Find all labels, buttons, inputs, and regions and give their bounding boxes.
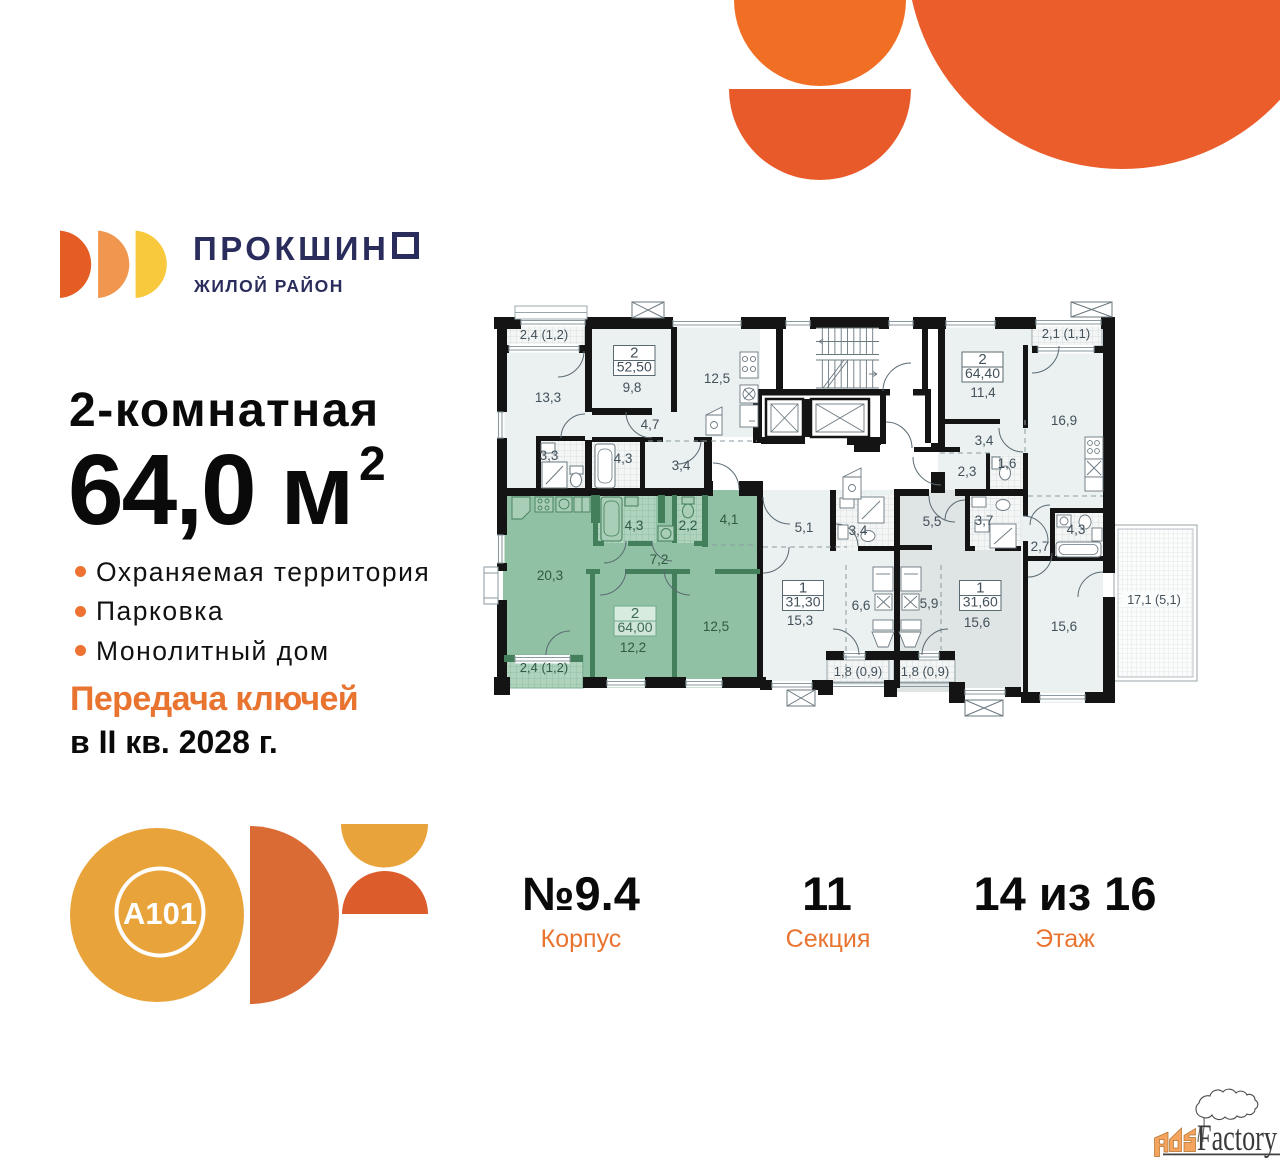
svg-text:31,30: 31,30 xyxy=(785,594,820,610)
svg-text:12,2: 12,2 xyxy=(620,640,646,655)
svg-text:4,3: 4,3 xyxy=(1067,522,1086,537)
svg-text:12,5: 12,5 xyxy=(703,619,729,634)
svg-text:3,4: 3,4 xyxy=(975,433,994,448)
svg-text:4,3: 4,3 xyxy=(625,518,644,533)
svg-text:4,1: 4,1 xyxy=(720,512,739,527)
svg-text:2,2: 2,2 xyxy=(679,518,698,533)
svg-text:2,4 (1,2): 2,4 (1,2) xyxy=(520,327,568,342)
svg-text:6,6: 6,6 xyxy=(852,598,871,613)
svg-text:1,8 (0,9): 1,8 (0,9) xyxy=(901,664,949,679)
svg-text:64,40: 64,40 xyxy=(965,365,1000,381)
svg-text:3,7: 3,7 xyxy=(975,513,994,528)
svg-text:2,1 (1,1): 2,1 (1,1) xyxy=(1042,326,1090,341)
svg-text:1,6: 1,6 xyxy=(998,456,1017,471)
svg-text:3,4: 3,4 xyxy=(849,523,868,538)
svg-text:64,00: 64,00 xyxy=(617,619,652,635)
svg-text:2,7: 2,7 xyxy=(1031,539,1050,554)
svg-text:31,60: 31,60 xyxy=(963,594,998,610)
svg-text:7,2: 7,2 xyxy=(650,552,669,567)
svg-text:9,8: 9,8 xyxy=(623,380,642,395)
svg-text:17,1 (5,1): 17,1 (5,1) xyxy=(1127,593,1181,607)
svg-text:5,1: 5,1 xyxy=(795,520,814,535)
svg-text:11,4: 11,4 xyxy=(970,385,996,400)
svg-text:13,3: 13,3 xyxy=(535,390,561,405)
svg-text:12,5: 12,5 xyxy=(704,371,730,386)
svg-text:3,3: 3,3 xyxy=(540,448,559,463)
svg-text:52,50: 52,50 xyxy=(617,359,652,375)
svg-text:20,3: 20,3 xyxy=(537,568,563,583)
svg-text:Factory: Factory xyxy=(1197,1118,1277,1159)
svg-text:1,8 (0,9): 1,8 (0,9) xyxy=(834,664,882,679)
svg-text:4,7: 4,7 xyxy=(641,417,660,432)
svg-text:5,9: 5,9 xyxy=(920,596,939,611)
svg-text:3,4: 3,4 xyxy=(672,458,691,473)
svg-text:16,9: 16,9 xyxy=(1051,413,1077,428)
svg-text:2,3: 2,3 xyxy=(958,464,977,479)
svg-text:15,3: 15,3 xyxy=(787,613,813,628)
svg-text:15,6: 15,6 xyxy=(964,615,990,630)
svg-text:2,4 (1,2): 2,4 (1,2) xyxy=(520,660,568,675)
svg-text:4,3: 4,3 xyxy=(614,451,633,466)
svg-text:15,6: 15,6 xyxy=(1051,619,1077,634)
svg-text:5,5: 5,5 xyxy=(923,514,942,529)
